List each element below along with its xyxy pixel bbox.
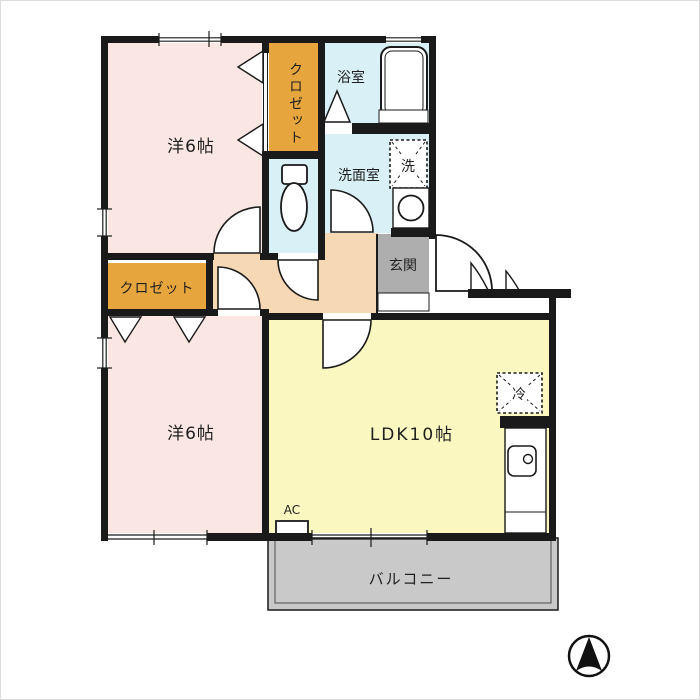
washroom-label: 洗面室 bbox=[319, 165, 399, 185]
closet-top-label: クロゼット bbox=[285, 53, 305, 155]
ldk-label: LDK10帖 bbox=[337, 420, 487, 445]
balcony-label: バルコニー bbox=[336, 568, 486, 589]
wall-ldk-top-a bbox=[262, 313, 323, 320]
window-top-gap bbox=[159, 36, 221, 43]
wall-bottom-b bbox=[207, 533, 312, 541]
wall-toilet-left bbox=[262, 151, 269, 260]
bathtub-deck bbox=[379, 110, 428, 123]
vanity-sink-icon bbox=[399, 196, 424, 221]
bath-label: 浴室 bbox=[316, 67, 386, 87]
toilet-bowl-icon bbox=[281, 183, 307, 231]
wall-under-vanity bbox=[391, 228, 436, 237]
wall-porch-ledge bbox=[468, 289, 571, 298]
wall-right-upper bbox=[429, 36, 436, 239]
wall-bedroom-bottom-top-a bbox=[101, 309, 218, 316]
wall-toilet-corner bbox=[318, 253, 325, 260]
wall-bedroom-top-bottom-a bbox=[101, 253, 214, 260]
toilet-tank-icon bbox=[282, 165, 307, 184]
wall-kitchen-stub bbox=[500, 416, 549, 428]
ac-label: AC bbox=[278, 503, 306, 517]
floorplan-drawing bbox=[1, 1, 700, 700]
floorplan-image: 洋6帖 クロゼット 浴室 洗面室 洗 玄関 クロゼット 洋6帖 LDK10帖 冷… bbox=[0, 0, 700, 700]
genkan-step bbox=[378, 293, 429, 311]
wall-ldk-right bbox=[549, 297, 556, 541]
fridge-label: 冷 bbox=[511, 384, 527, 404]
window-left-upper-gap bbox=[101, 209, 108, 236]
genkan-label: 玄関 bbox=[373, 255, 433, 275]
window-left-lower-gap bbox=[101, 338, 108, 368]
wall-closet-top-stub bbox=[262, 43, 269, 53]
wall-bath-washroom-b bbox=[352, 123, 429, 134]
hall-floor-washroom-front bbox=[325, 233, 378, 260]
wall-bottom-c bbox=[427, 533, 556, 541]
compass-north-icon bbox=[569, 636, 609, 676]
bedroom-top-label: 洋6帖 bbox=[131, 132, 251, 157]
wall-bedroom-top-bottom-b bbox=[260, 253, 278, 260]
wall-closet-left-right bbox=[206, 256, 213, 316]
wall-bedroom-ldk-divider bbox=[262, 309, 269, 541]
wall-bath-washroom-a bbox=[319, 123, 323, 134]
entrance-door-subleaf bbox=[506, 271, 519, 290]
bedroom-bottom-label: 洋6帖 bbox=[131, 419, 251, 444]
kitchen-counter bbox=[505, 428, 546, 533]
closet-left-label: クロゼット bbox=[107, 278, 207, 298]
ac-unit-icon bbox=[276, 521, 308, 535]
washer-label: 洗 bbox=[400, 156, 416, 176]
wall-bottom-a bbox=[101, 533, 107, 541]
kitchen-faucet-icon bbox=[524, 455, 533, 464]
wall-top bbox=[101, 36, 436, 43]
wall-ldk-top-b bbox=[371, 313, 556, 320]
bathtub-icon bbox=[381, 47, 427, 118]
window-bath-gap bbox=[386, 36, 421, 43]
